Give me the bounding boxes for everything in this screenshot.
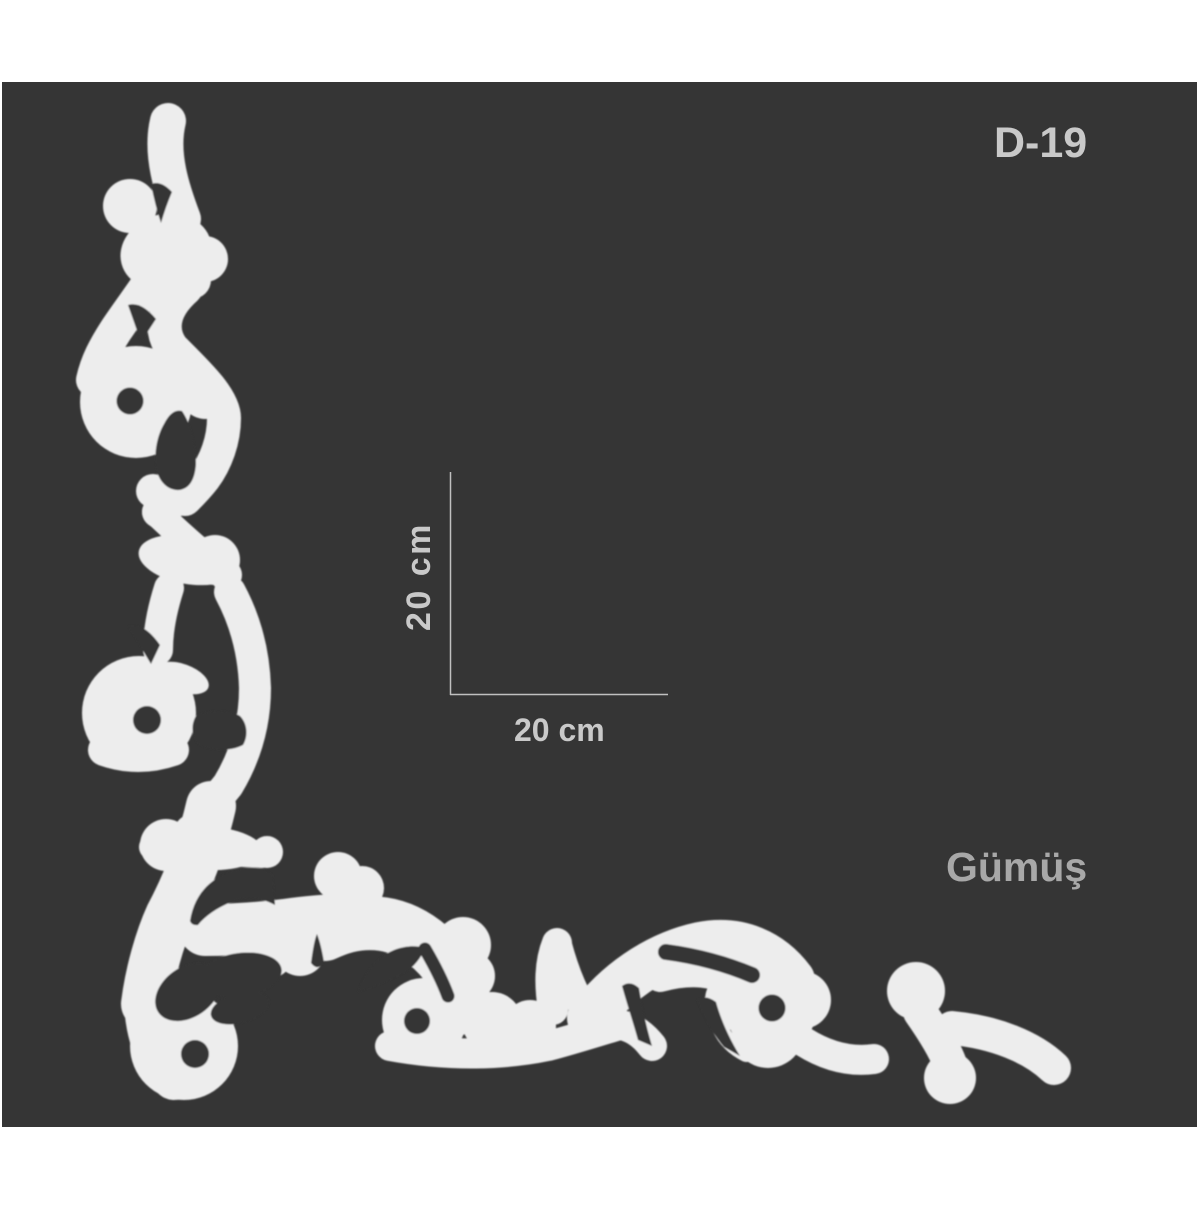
- svg-text:20 cm: 20 cm: [400, 522, 438, 631]
- svg-text:Gümüş: Gümüş: [946, 844, 1087, 890]
- svg-text:D-19: D-19: [994, 119, 1087, 167]
- svg-text:20 cm: 20 cm: [514, 712, 605, 748]
